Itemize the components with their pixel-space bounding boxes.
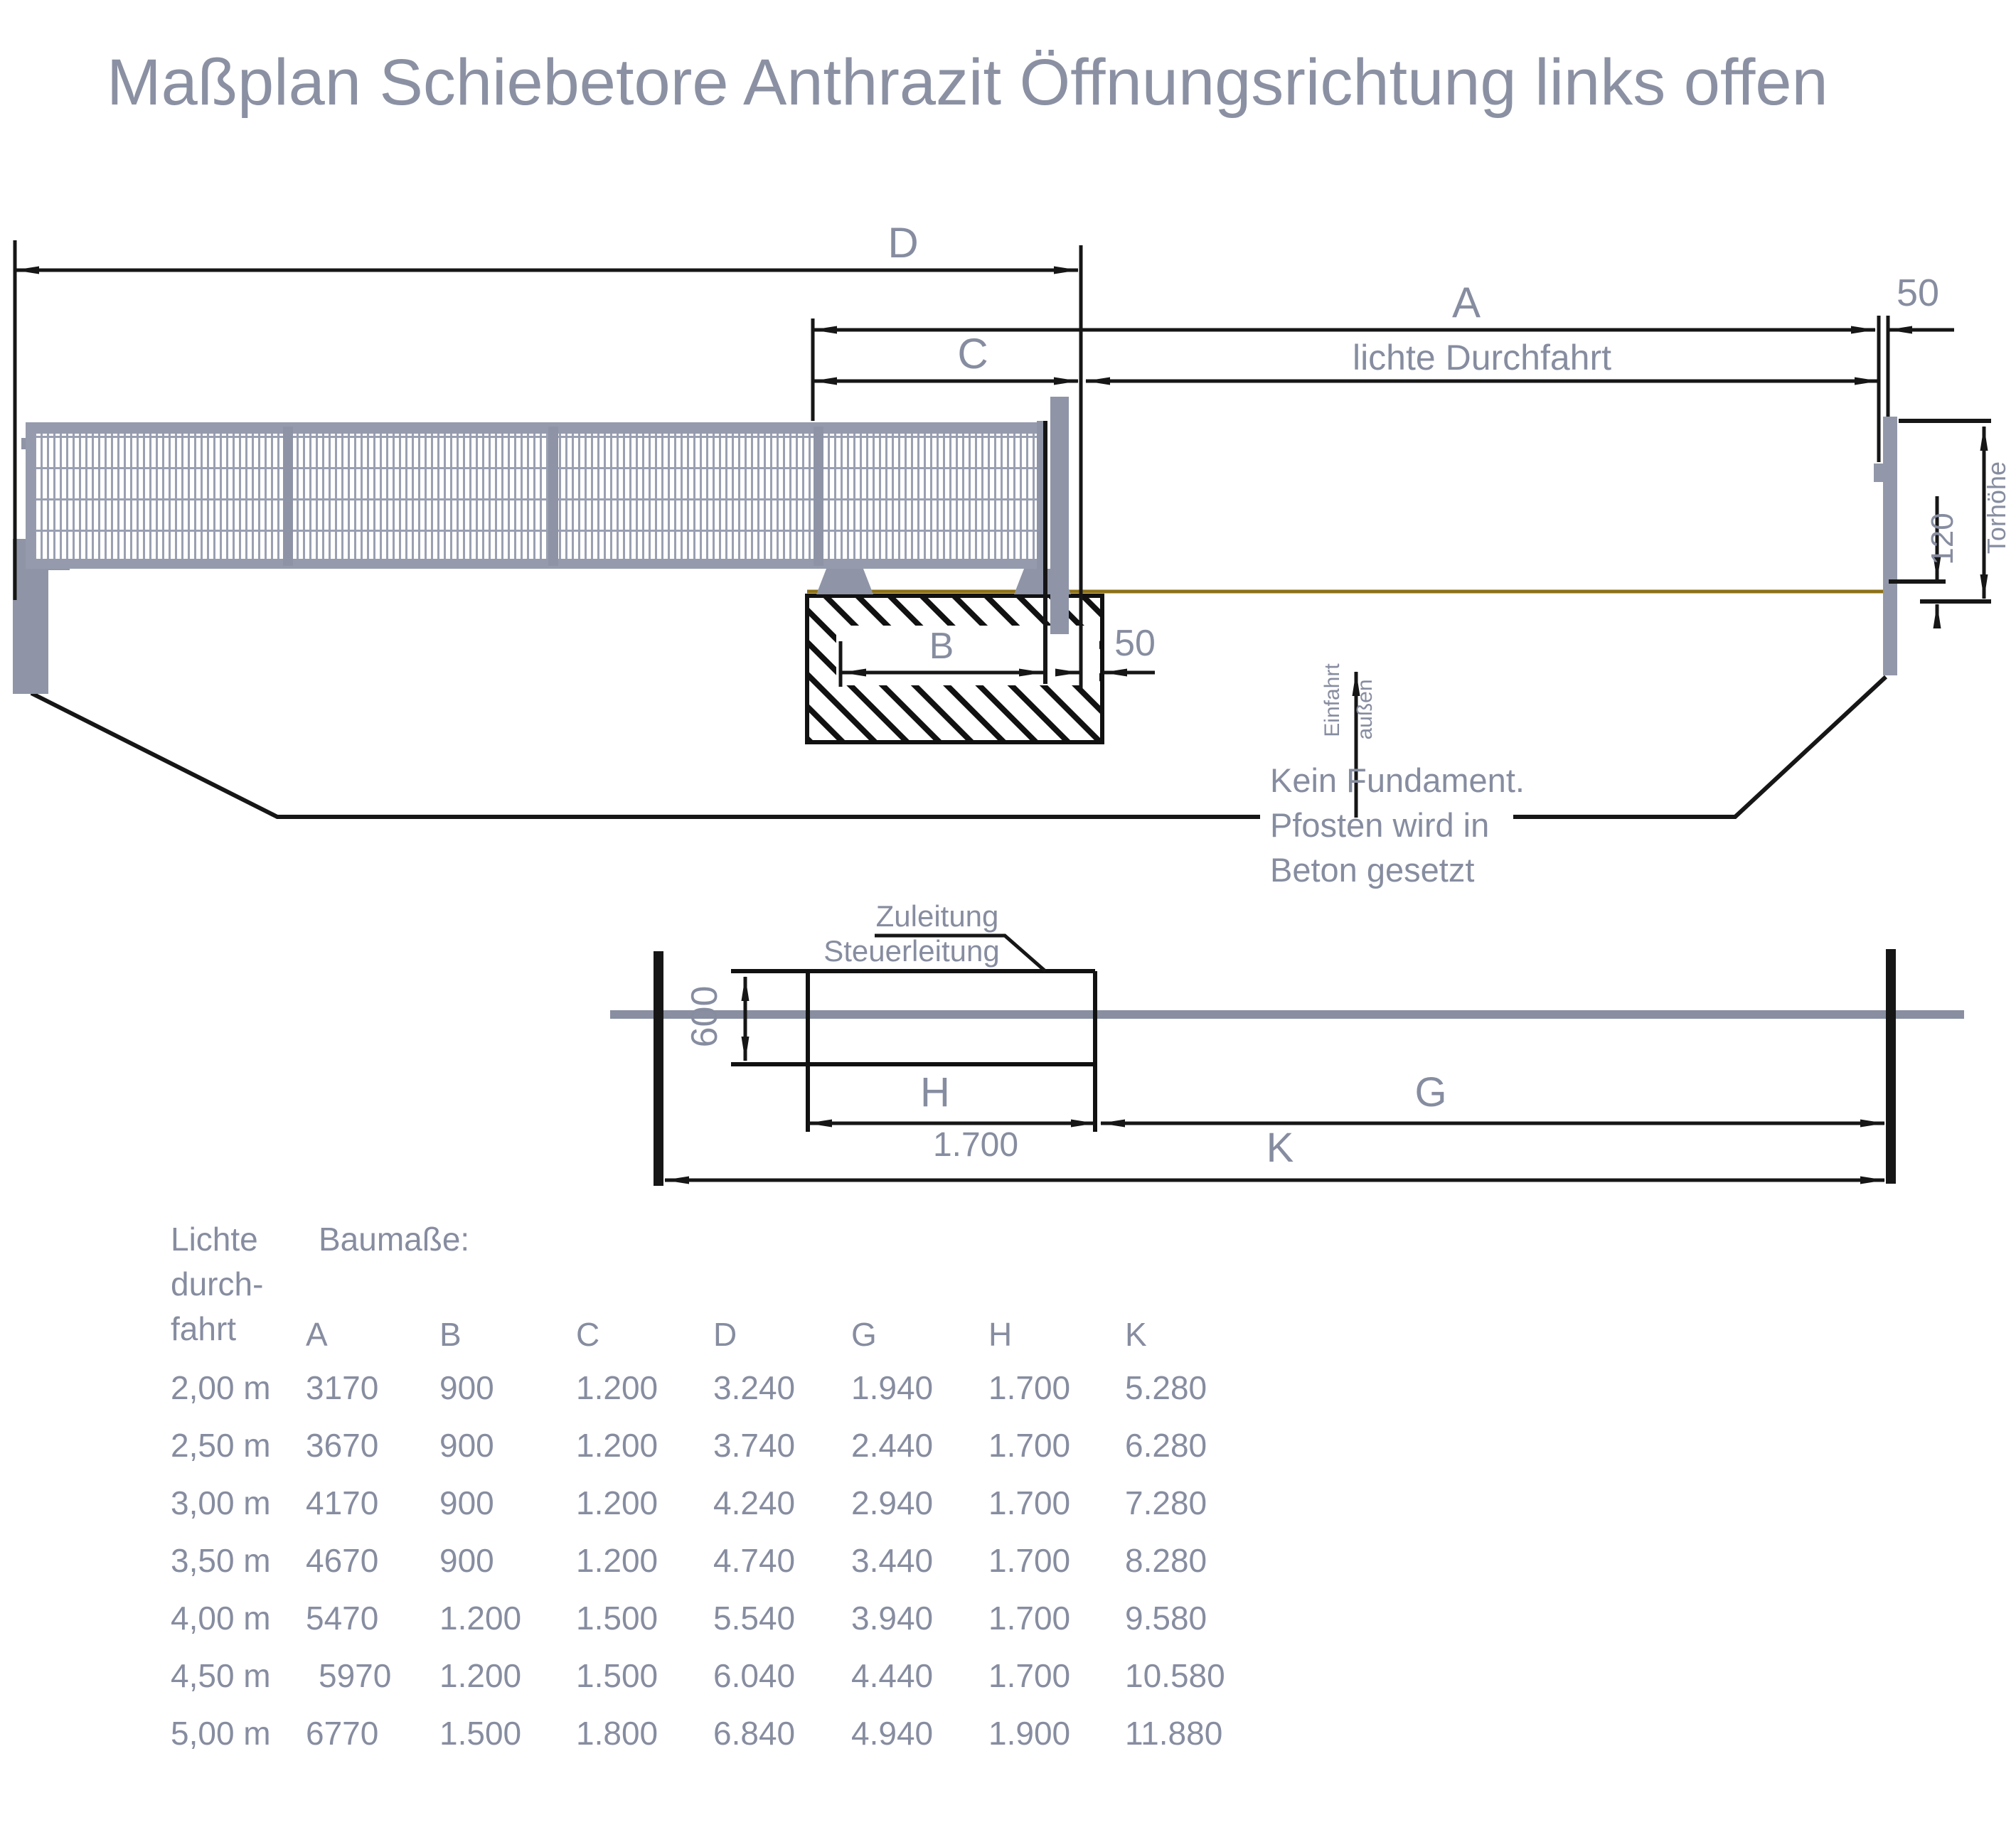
table-row-label: 2,50 m (171, 1426, 271, 1465)
table-cell: 1.800 (576, 1714, 658, 1752)
gate-leaf (26, 421, 1071, 594)
table-cell: 900 (439, 1369, 494, 1407)
table-cell: 1.200 (439, 1599, 521, 1637)
mid-gap-label: 50 (1114, 623, 1156, 664)
gate-left-bar (26, 422, 36, 569)
table-cell: 1.940 (851, 1369, 933, 1407)
table-row-header-line: Lichte (171, 1220, 258, 1258)
table-cell: 2.440 (851, 1426, 933, 1465)
table-col-header-g: G (851, 1315, 877, 1354)
table-cell: 3.240 (713, 1369, 795, 1407)
table-row-header-line: fahrt (171, 1310, 236, 1348)
clear-passage-label: lichte Durchfahrt (1353, 338, 1611, 378)
receiving-post (1883, 417, 1897, 675)
dim-label-c: C (957, 330, 988, 378)
gate-divider-3 (814, 427, 823, 566)
table-cell: 8.280 (1125, 1541, 1207, 1580)
table-col-header-a: A (306, 1315, 328, 1354)
table-cell: 1.700 (988, 1426, 1070, 1465)
table-cell: 9.580 (1125, 1599, 1207, 1637)
table-cell: 4670 (306, 1541, 378, 1580)
table-cell: 1.700 (988, 1484, 1070, 1522)
right-post-plan (1886, 949, 1896, 1184)
gate-mesh (36, 434, 1037, 559)
table-cell: 1.500 (576, 1599, 658, 1637)
table-cell: 3.740 (713, 1426, 795, 1465)
table-row-label: 3,00 m (171, 1484, 271, 1522)
table-cell: 6.280 (1125, 1426, 1207, 1465)
dim-label-g: G (1414, 1069, 1446, 1115)
ground-outline-right (1513, 677, 1886, 817)
table-row-label: 5,00 m (171, 1714, 271, 1752)
table-cell: 900 (439, 1541, 494, 1580)
entry-direction-label-2: außen (1353, 679, 1377, 739)
table-cell: 3170 (306, 1369, 378, 1407)
table-col-header-h: H (988, 1315, 1012, 1354)
table-cell: 1.200 (576, 1369, 658, 1407)
gate-divider-1 (283, 427, 293, 566)
technical-drawing: D A C lichte Durchfahrt 50 Torhöhe (0, 0, 2016, 1209)
gate-height-label: Torhöhe (1982, 461, 2011, 554)
table-cell: 6770 (306, 1714, 378, 1752)
table-cell: 5.280 (1125, 1369, 1207, 1407)
table-col-header-c: C (576, 1315, 599, 1354)
dim-label-d: D (887, 219, 918, 267)
note-line-2: Pfosten wird in (1270, 806, 1489, 844)
table-cell: 5970 (319, 1656, 391, 1695)
table-cell: 3670 (306, 1426, 378, 1465)
table-cell: 4.440 (851, 1656, 933, 1695)
table-row-label: 3,50 m (171, 1541, 271, 1580)
table-cell: 4.740 (713, 1541, 795, 1580)
guide-post (1050, 397, 1069, 634)
dim-label-h: H (920, 1069, 950, 1115)
table-cell: 1.500 (576, 1656, 658, 1695)
table-cell: 5.540 (713, 1599, 795, 1637)
table-col-header-d: D (713, 1315, 737, 1354)
gate-top-rail (26, 422, 1038, 434)
table-cell: 5470 (306, 1599, 378, 1637)
table-cell: 900 (439, 1426, 494, 1465)
table-cell: 2.940 (851, 1484, 933, 1522)
side-elevation: D A C lichte Durchfahrt 50 Torhöhe (13, 219, 2011, 889)
gate-divider-2 (548, 427, 558, 566)
table-row-header-line: durch- (171, 1265, 263, 1303)
entry-direction-label-1: Einfahrt (1321, 663, 1344, 737)
table-cell: 1.900 (988, 1714, 1070, 1752)
table-cell: 11.880 (1125, 1714, 1222, 1752)
supply-line-label: Zuleitung (876, 899, 999, 933)
dim-label-a: A (1452, 279, 1481, 326)
table-cell: 3.940 (851, 1599, 933, 1637)
dim-label-b: B (929, 626, 954, 667)
clearance-label: 120 (1925, 513, 1960, 564)
fence-line-plan (610, 1010, 1964, 1019)
table-col-header-k: K (1125, 1315, 1147, 1354)
table-cell: 1.200 (439, 1656, 521, 1695)
table-cell: 4.940 (851, 1714, 933, 1752)
table-cell: 1.500 (439, 1714, 521, 1752)
table-cell: 6.040 (713, 1656, 795, 1695)
table-cell: 4170 (306, 1484, 378, 1522)
note-line-1: Kein Fundament. (1270, 761, 1525, 799)
table-cell: 1.200 (576, 1426, 658, 1465)
table-row-label: 4,00 m (171, 1599, 271, 1637)
gate-bottom-rail (26, 559, 1038, 569)
plan-view: 600 Zuleitung Steuerleitung H 1.700 G K (610, 899, 1964, 1186)
receiving-post-catch (1874, 464, 1883, 482)
table-cell: 1.200 (576, 1484, 658, 1522)
table-cell: 4.240 (713, 1484, 795, 1522)
table-cell: 1.700 (988, 1656, 1070, 1695)
dim-label-k: K (1266, 1125, 1294, 1171)
post-gap-label: 50 (1897, 272, 1939, 314)
table-cell: 900 (439, 1484, 494, 1522)
table-cell: 1.700 (988, 1599, 1070, 1637)
left-post-plan (654, 951, 663, 1186)
table-cell: 1.200 (576, 1541, 658, 1580)
table-col-header-b: B (439, 1315, 462, 1354)
table-cell: 1.700 (988, 1369, 1070, 1407)
massplan-page: Maßplan Schiebetore Anthrazit Öffnungsri… (0, 0, 2016, 1847)
table-cell: 1.700 (988, 1541, 1070, 1580)
h-value-label: 1.700 (933, 1126, 1018, 1164)
note-line-3: Beton gesetzt (1270, 851, 1474, 889)
table-row-label: 4,50 m (171, 1656, 271, 1695)
control-line-label: Steuerleitung (823, 934, 1000, 968)
table-cell: 6.840 (713, 1714, 795, 1752)
depth-label: 600 (684, 986, 725, 1048)
foundation-label-band (836, 626, 1099, 685)
gate-roller-foot-1 (816, 569, 873, 594)
table-cell: 7.280 (1125, 1484, 1207, 1522)
table-row-label: 2,00 m (171, 1369, 271, 1407)
table-dims-header: Baumaße: (319, 1220, 469, 1258)
table-cell: 10.580 (1125, 1656, 1225, 1695)
table-cell: 3.440 (851, 1541, 933, 1580)
